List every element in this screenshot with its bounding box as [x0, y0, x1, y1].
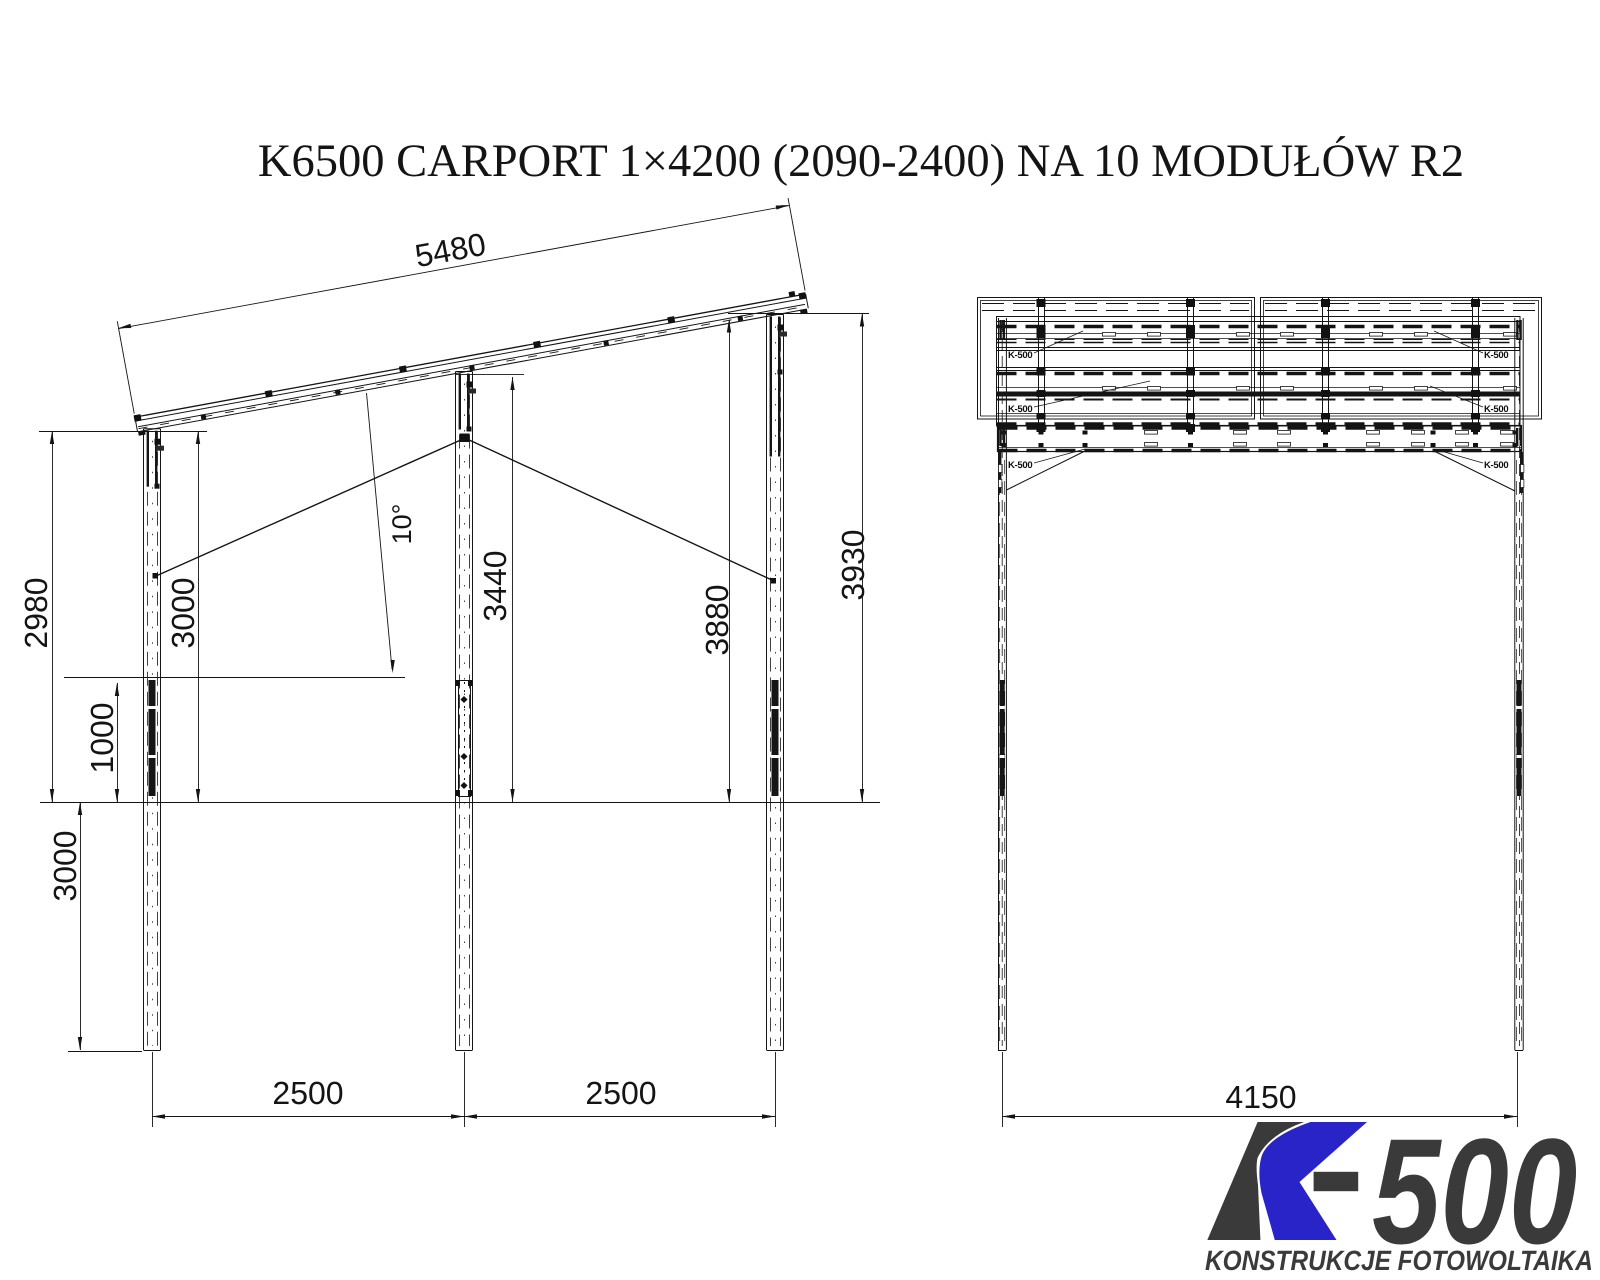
svg-text:2500: 2500	[272, 1075, 343, 1111]
svg-text:K-500: K-500	[1484, 350, 1508, 361]
svg-text:KONSTRUKCJE FOTOWOLTAIKA: KONSTRUKCJE FOTOWOLTAIKA	[1205, 1245, 1593, 1276]
svg-text:K-500: K-500	[1484, 460, 1508, 471]
svg-text:10°: 10°	[387, 504, 417, 545]
svg-text:K6500 CARPORT 1×4200 (2090-240: K6500 CARPORT 1×4200 (2090-2400) NA 10 M…	[258, 136, 1464, 187]
svg-text:3000: 3000	[165, 577, 201, 648]
svg-text:2500: 2500	[585, 1075, 656, 1111]
svg-text:3930: 3930	[835, 529, 871, 600]
svg-text:3000: 3000	[47, 830, 83, 901]
svg-text:3440: 3440	[477, 550, 513, 621]
svg-text:K-500: K-500	[1008, 350, 1032, 361]
svg-text:K-500: K-500	[1008, 460, 1032, 471]
svg-text:K-500: K-500	[1484, 404, 1508, 415]
svg-text:4150: 4150	[1225, 1079, 1296, 1115]
svg-text:2980: 2980	[18, 577, 54, 648]
svg-text:3880: 3880	[699, 584, 735, 655]
svg-text:K-500: K-500	[1008, 404, 1032, 415]
svg-text:1000: 1000	[84, 702, 120, 773]
